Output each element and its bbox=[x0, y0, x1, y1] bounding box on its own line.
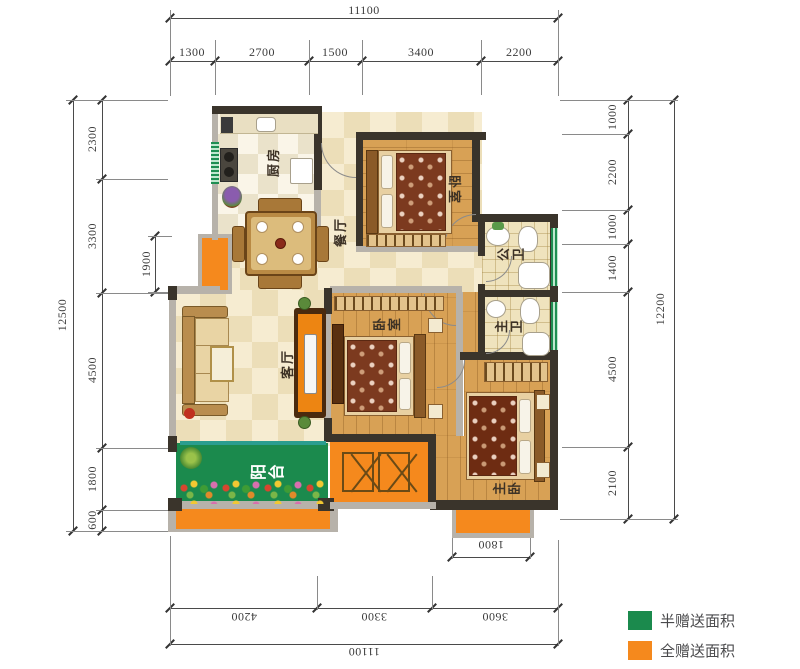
plate-2 bbox=[292, 221, 304, 233]
wall-kitchen-top bbox=[212, 106, 322, 114]
wall-bath-top bbox=[476, 214, 558, 222]
bed-top-headboard bbox=[366, 150, 378, 234]
extension-line bbox=[362, 40, 363, 95]
dim-bottom-inner: 1800 bbox=[469, 538, 513, 552]
master-bath-window bbox=[551, 302, 558, 350]
tv-plant-bottom bbox=[298, 416, 311, 429]
legend-row-full-gift: 全赠送面积 bbox=[628, 640, 798, 660]
stove-burner-1 bbox=[224, 152, 234, 162]
legend-swatch-half-gift bbox=[628, 611, 652, 630]
dim-right-seg-1: 2200 bbox=[605, 150, 619, 194]
dim-line-left-segments bbox=[102, 100, 103, 531]
master-wardrobe bbox=[484, 362, 548, 382]
extension-line bbox=[96, 179, 168, 180]
storage-box-2 bbox=[378, 452, 410, 492]
public-bath-window bbox=[551, 228, 558, 286]
dim-bottom-seg-1: 3300 bbox=[352, 610, 396, 624]
extension-line bbox=[96, 510, 168, 511]
dining-chair-bottom bbox=[258, 274, 302, 289]
legend-row-half-gift: 半赠送面积 bbox=[628, 610, 798, 630]
master-bath-tub bbox=[522, 332, 550, 356]
dim-top-seg-3: 3400 bbox=[399, 45, 443, 59]
extension-line bbox=[560, 519, 678, 520]
coffee-table bbox=[210, 346, 234, 382]
room-label-bedroom-top: 卧室 bbox=[448, 170, 464, 210]
dim-left-inner: 1900 bbox=[139, 242, 153, 286]
kitchen-appliance bbox=[221, 117, 233, 133]
dim-line-left-inner bbox=[155, 236, 156, 292]
wall-bath-left-upper bbox=[478, 222, 485, 256]
extension-line bbox=[66, 100, 168, 101]
wall-living-left bbox=[169, 300, 176, 436]
extension-line bbox=[452, 538, 453, 559]
extension-line bbox=[148, 236, 172, 237]
extension-line bbox=[558, 540, 559, 646]
dim-top-seg-1: 2700 bbox=[240, 45, 284, 59]
bottom-left-strip-full-gift bbox=[176, 509, 330, 529]
extension-line bbox=[562, 244, 630, 245]
kitchen-sink bbox=[256, 117, 276, 132]
bed-mid-quilt bbox=[347, 340, 397, 412]
dim-left-seg-3: 1800 bbox=[85, 457, 99, 501]
floorplan-canvas: 11100 1300 2700 1500 3400 2200 12500 230… bbox=[0, 0, 800, 669]
room-label-balcony: 阳台 bbox=[238, 462, 294, 482]
dim-line-bottom-inner bbox=[452, 557, 530, 558]
bed-mid-pillow-2 bbox=[399, 378, 411, 410]
balcony-sliding-door bbox=[180, 441, 326, 445]
wall-living-left-corner-bottom bbox=[168, 436, 177, 452]
dim-right-seg-3: 1400 bbox=[605, 246, 619, 290]
public-bath-plant bbox=[492, 222, 504, 230]
dim-bottom-total: 11100 bbox=[334, 645, 394, 659]
plate-1 bbox=[256, 221, 268, 233]
wall-bedroom-top-right bbox=[472, 140, 480, 222]
extension-line bbox=[562, 210, 630, 211]
extension-line bbox=[309, 40, 310, 95]
wall-bedroom-mid-bottom bbox=[328, 434, 436, 442]
dim-right-seg-2: 1000 bbox=[605, 205, 619, 249]
bed-mid-headboard bbox=[414, 334, 426, 418]
master-bed-pillow-2 bbox=[519, 440, 531, 474]
extension-line bbox=[96, 448, 168, 449]
extension-line bbox=[170, 536, 171, 646]
bed-top-quilt bbox=[396, 153, 446, 231]
wall-master-left-lower bbox=[428, 436, 436, 506]
dim-top-seg-2: 1500 bbox=[313, 45, 357, 59]
master-bed-quilt bbox=[469, 396, 517, 476]
dim-bottom-seg-0: 4200 bbox=[222, 610, 266, 624]
dim-line-right-total bbox=[674, 100, 675, 519]
bed-mid-nightstand-2 bbox=[428, 404, 443, 419]
sofa-back bbox=[182, 316, 195, 404]
dim-line-top-total bbox=[170, 18, 558, 19]
dim-bottom-seg-2: 3600 bbox=[473, 610, 517, 624]
dim-line-top-segments bbox=[170, 61, 558, 62]
balcony-plant bbox=[180, 447, 202, 469]
extension-line bbox=[560, 100, 678, 101]
dim-top-total: 11100 bbox=[334, 3, 394, 17]
extension-line bbox=[562, 292, 630, 293]
room-label-living: 客厅 bbox=[278, 344, 294, 384]
extension-line bbox=[317, 576, 318, 610]
master-nightstand-1 bbox=[536, 394, 550, 410]
plate-3 bbox=[256, 253, 268, 265]
left-niche-full-gift bbox=[202, 238, 228, 290]
dim-left-seg-0: 2300 bbox=[85, 117, 99, 161]
bed-mid-pillow-1 bbox=[399, 342, 411, 374]
legend-label-half-gift: 半赠送面积 bbox=[660, 610, 735, 631]
stove-burner-2 bbox=[224, 167, 234, 177]
dim-line-left-total bbox=[73, 100, 74, 531]
public-bath-tub bbox=[518, 262, 550, 289]
dim-top-seg-0: 1300 bbox=[170, 45, 214, 59]
master-bath-sink bbox=[486, 300, 506, 318]
extension-line bbox=[562, 134, 630, 135]
room-label-master-bedroom: 主卧 bbox=[486, 480, 526, 496]
master-bed-pillow-1 bbox=[519, 399, 531, 433]
wall-bath-divider bbox=[484, 290, 552, 297]
plate-4 bbox=[292, 253, 304, 265]
dim-left-seg-2: 4500 bbox=[85, 348, 99, 392]
bed-mid-nightstand-1 bbox=[428, 318, 443, 333]
wall-bedroom-top-left bbox=[356, 140, 363, 252]
room-label-master-bath: 主卫 bbox=[488, 318, 528, 334]
wall-bedroom-mid-top bbox=[330, 286, 462, 293]
dining-plant bbox=[222, 186, 242, 208]
dim-top-seg-4: 2200 bbox=[497, 45, 541, 59]
room-label-bedroom-mid: 卧室 bbox=[364, 316, 408, 332]
extension-line bbox=[215, 40, 216, 95]
extension-line bbox=[432, 576, 433, 610]
dim-line-bottom-segments bbox=[170, 608, 558, 609]
extension-line bbox=[66, 531, 168, 532]
tv-plant-top bbox=[298, 297, 311, 310]
dim-left-total: 12500 bbox=[55, 285, 69, 345]
dim-right-seg-5: 2100 bbox=[605, 461, 619, 505]
room-label-public-bath: 公卫 bbox=[490, 246, 530, 262]
dim-right-seg-4: 4500 bbox=[605, 347, 619, 391]
bed-top-pillow-2 bbox=[381, 194, 393, 228]
wall-storage-bottom bbox=[330, 502, 436, 509]
extension-line bbox=[530, 538, 531, 559]
balcony-flowers bbox=[178, 480, 326, 504]
living-floor-lamp bbox=[184, 408, 195, 419]
room-label-dining: 餐厅 bbox=[331, 212, 347, 252]
legend-label-full-gift: 全赠送面积 bbox=[660, 640, 735, 661]
extension-line bbox=[481, 40, 482, 95]
dim-left-seg-4: 600 bbox=[85, 498, 99, 542]
extension-line bbox=[562, 447, 630, 448]
bedroom-top-wardrobe bbox=[366, 234, 446, 247]
kitchen-window bbox=[211, 142, 219, 184]
bedroom-mid-wardrobe bbox=[334, 296, 444, 311]
refrigerator bbox=[290, 158, 313, 184]
wall-living-left-corner-top bbox=[168, 286, 177, 300]
master-nightstand-2 bbox=[536, 462, 550, 478]
legend-swatch-full-gift bbox=[628, 641, 652, 660]
bedroom-mid-tv-cabinet bbox=[332, 324, 344, 404]
dining-chair-left bbox=[232, 226, 245, 262]
wall-bedroom-top-top bbox=[356, 132, 486, 140]
room-label-kitchen: 厨房 bbox=[264, 142, 280, 182]
center-dish bbox=[275, 238, 286, 249]
bed-top-pillow-1 bbox=[381, 155, 393, 189]
extension-line bbox=[558, 10, 559, 96]
extension-line bbox=[96, 293, 168, 294]
storage-box-1 bbox=[342, 452, 374, 492]
dim-line-right-segments bbox=[628, 100, 629, 519]
wall-master-bottom bbox=[430, 500, 558, 510]
tv-screen bbox=[304, 334, 317, 394]
dim-right-seg-0: 1000 bbox=[605, 95, 619, 139]
dim-right-total: 12200 bbox=[653, 279, 667, 339]
dim-left-seg-1: 3300 bbox=[85, 214, 99, 258]
dining-chair-right bbox=[316, 226, 329, 262]
